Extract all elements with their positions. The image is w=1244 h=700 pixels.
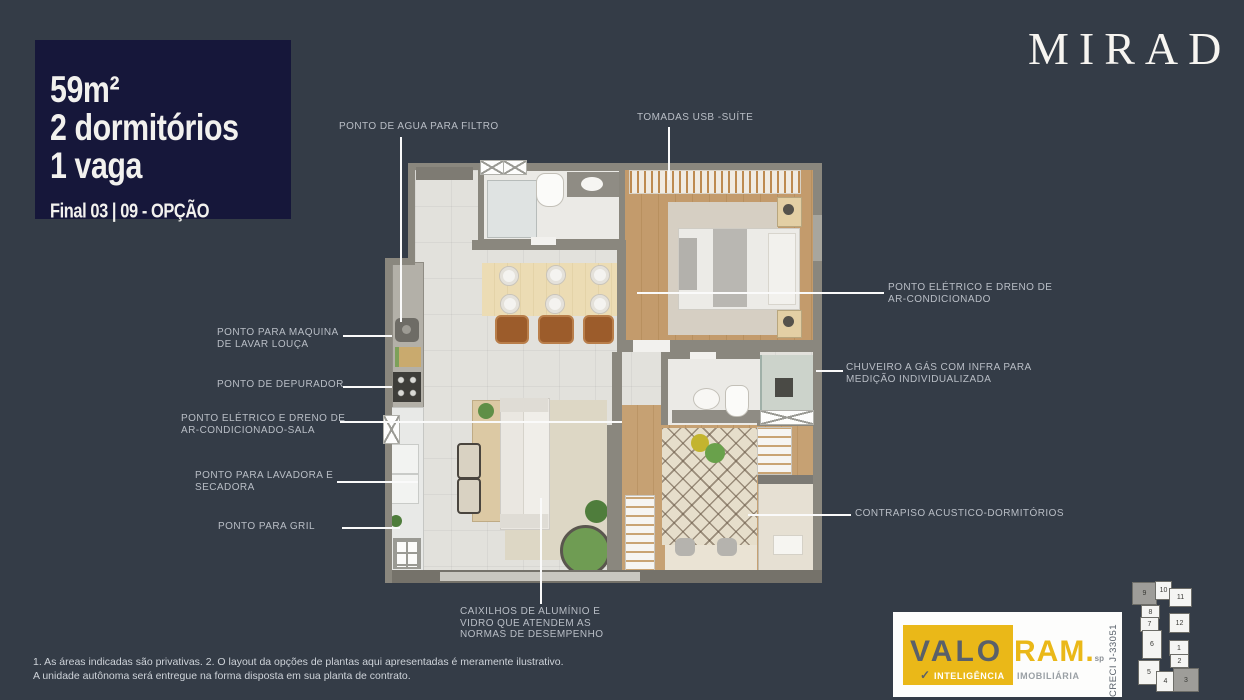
keyplan-unit-12: 12 (1169, 613, 1190, 633)
bedroom2-pouf-green (705, 443, 725, 463)
callout-caixilhos: CAIXILHOS DE ALUMÍNIO EVIDRO QUE ATENDEM… (460, 606, 603, 641)
bedroom2-wardrobe-left (625, 495, 655, 572)
bathroom2-door-gap (690, 352, 716, 359)
console-plant (478, 403, 494, 419)
bathroom1-sink (581, 177, 603, 191)
callout-line-lava-louca (343, 335, 392, 337)
valoram-ram-text: RAM.sp (1014, 635, 1104, 669)
callout-line-chuveiro (816, 370, 843, 372)
shower-window-marker (760, 410, 814, 425)
building-keyplan: 9 10 11 8 7 12 6 1 2 5 4 3 (1128, 576, 1208, 700)
bathroom2-toilet (725, 385, 749, 417)
callout-agua-filtro: PONTO DE AGUA PARA FILTRO (339, 121, 499, 133)
bedroom2-bed (758, 475, 815, 572)
dining-plate-4 (500, 294, 520, 314)
suite-bed-blanket (713, 229, 747, 307)
mirad-logo: MIRAD (1028, 22, 1231, 75)
shower-fixture (775, 378, 793, 397)
grill-appliance (393, 538, 421, 569)
callout-ac-suite: PONTO ELÉTRICO E DRENO DEAR-CONDICIONADO (888, 282, 1052, 305)
washer-unit (391, 444, 419, 474)
wall-left-upper (408, 163, 415, 265)
keyplan-unit-6: 6 (1142, 630, 1162, 659)
callout-line-agua (400, 137, 402, 322)
disclaimer-text: 1. As áreas indicadas são privativas. 2.… (33, 656, 564, 683)
armchair-1 (457, 443, 481, 479)
badge-unit-number: Final 03 | 09 - OPÇÃO (50, 212, 209, 235)
callout-line-lavadora (337, 481, 418, 483)
callout-depurador: PONTO DE DEPURADOR (217, 379, 344, 391)
kitchen-sink-drain (402, 325, 411, 334)
keyplan-unit-2: 2 (1170, 654, 1189, 668)
callout-line-depurador (343, 386, 392, 388)
sofa-arm-top (500, 398, 548, 412)
bathroom1-shower (487, 180, 537, 238)
callout-ac-sala: PONTO ELÉTRICO E DRENO DEAR-CONDICIONADO… (181, 413, 345, 436)
suite-lamp-bottom (783, 316, 794, 327)
keyplan-unit-11: 11 (1169, 588, 1192, 607)
check-icon: ✓ (920, 668, 930, 682)
suite-bed-bench (679, 238, 697, 290)
valoram-valo-text: VALO (910, 635, 1003, 669)
entry-wardrobe (416, 167, 473, 180)
callout-chuveiro: CHUVEIRO A GÁS COM INFRA PARAMEDIÇÃO IND… (846, 362, 1032, 385)
dining-plate-1 (499, 266, 519, 286)
bedroom2-stool-1 (675, 538, 695, 556)
wall-bedroom2-left (607, 425, 622, 570)
dining-chair-2 (538, 315, 574, 344)
suite-lamp-top (783, 204, 794, 215)
bathroom1-door-gap (531, 237, 556, 245)
suite-headboard-panel (629, 170, 801, 194)
door-marker-left (383, 415, 400, 444)
callout-lava-louca: PONTO PARA MAQUINADE LAVAR LOUÇA (217, 327, 339, 350)
suite-bed-pillows (768, 233, 796, 305)
valoram-tagline-right: IMOBILIÁRIA (1017, 671, 1080, 681)
bedroom2-bed-headboard (758, 475, 813, 484)
suite-door-gap (633, 340, 670, 352)
keyplan-unit-3: 3 (1173, 668, 1199, 692)
callout-line-ac-suite (637, 292, 884, 294)
bedroom2-pillow (773, 535, 803, 555)
bathroom1-toilet (536, 173, 564, 207)
valoram-creci-text: CRECI J-33051 (1108, 612, 1119, 697)
callout-line-contrapiso (748, 514, 851, 516)
dining-plate-2 (546, 265, 566, 285)
dining-plate-3 (590, 265, 610, 285)
valoram-logo: VALO RAM.sp ✓ INTELIGÊNCIA IMOBILIÁRIA C… (893, 612, 1122, 697)
wall-suite-left (617, 240, 626, 342)
disclaimer-line-1: 1. As áreas indicadas são privativas. 2.… (33, 656, 564, 670)
sofa-seat-cushions (523, 412, 549, 514)
cutting-board (395, 347, 421, 367)
armchair-2 (457, 478, 481, 514)
callout-gril: PONTO PARA GRIL (218, 521, 315, 533)
dining-plate-6 (590, 294, 610, 314)
window-marker-top-2 (503, 160, 527, 175)
suite-window (813, 215, 822, 261)
valoram-tagline-left: INTELIGÊNCIA (934, 671, 1005, 681)
dining-chair-3 (583, 315, 614, 344)
bathroom2-wall-left (661, 352, 668, 425)
unit-info-badge: 59m² 2 dormitórios 1 vaga Final 03 | 09 … (35, 40, 291, 219)
wall-hall-left (612, 352, 622, 425)
disclaimer-line-2: A unidade autônoma será entregue na form… (33, 670, 564, 684)
papasan-chair-green (560, 525, 611, 576)
dining-chair-1 (495, 315, 529, 344)
bedroom2-wardrobe-right (757, 427, 792, 475)
living-plant (585, 500, 608, 523)
dining-plate-5 (545, 294, 565, 314)
keyplan-unit-9: 9 (1132, 582, 1157, 605)
callout-lavadora: PONTO PARA LAVADORA ESECADORA (195, 470, 333, 493)
floor-plan (383, 160, 824, 590)
dryer-unit (391, 474, 419, 504)
window-marker-top-1 (480, 160, 504, 175)
bathroom2-sink (693, 388, 720, 410)
bedroom2-stool-2 (717, 538, 737, 556)
cooktop (393, 372, 421, 402)
callout-line-ac-sala (340, 421, 622, 423)
callout-line-caixilhos (540, 498, 542, 604)
callout-contrapiso: CONTRAPISO ACUSTICO-DORMITÓRIOS (855, 508, 1064, 520)
callout-line-gril (342, 527, 400, 529)
callout-tomadas-usb: TOMADAS USB -SUÍTE (637, 112, 753, 124)
callout-line-tomadas (668, 127, 670, 180)
